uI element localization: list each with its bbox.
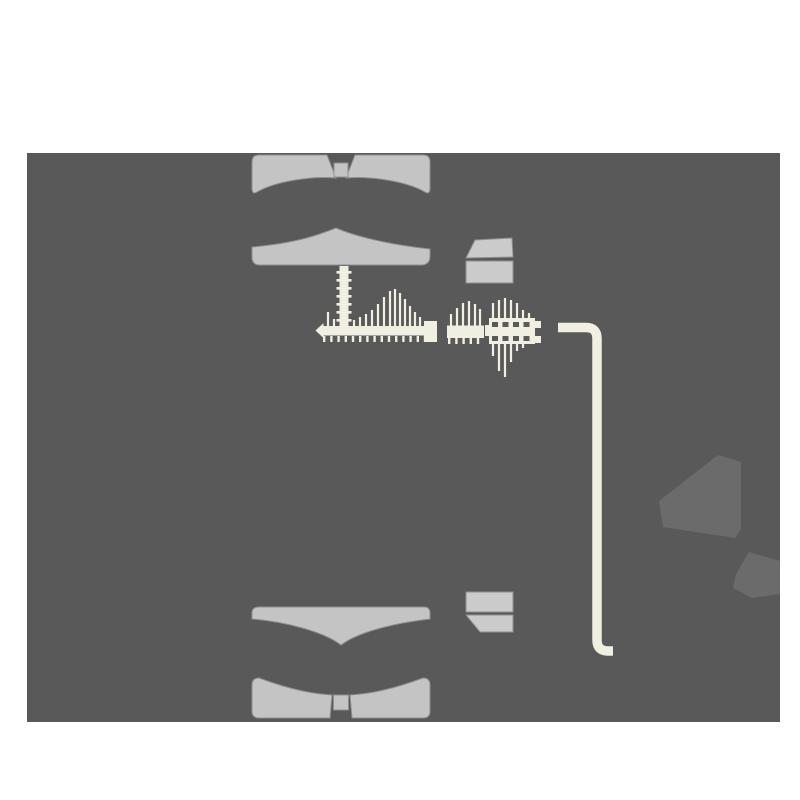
assembly-diagram-svg	[0, 0, 800, 800]
spacer-bottom-top-face	[466, 592, 513, 612]
anchor-tab-bottom	[535, 336, 541, 343]
panel-background	[27, 153, 780, 722]
spacer-top-front-face	[466, 261, 513, 283]
thread-nut	[424, 321, 437, 342]
bottom-bowtie-center-boss	[334, 695, 349, 710]
diagram-stage	[0, 0, 800, 800]
short-screw-shaft	[447, 326, 484, 339]
vertical-machine-screw	[340, 266, 349, 332]
vertical-screw-shaft	[340, 266, 349, 332]
spacer-block-top	[466, 238, 513, 283]
top-bowtie-center-boss	[334, 163, 348, 177]
anchor-tab-top	[535, 321, 541, 328]
